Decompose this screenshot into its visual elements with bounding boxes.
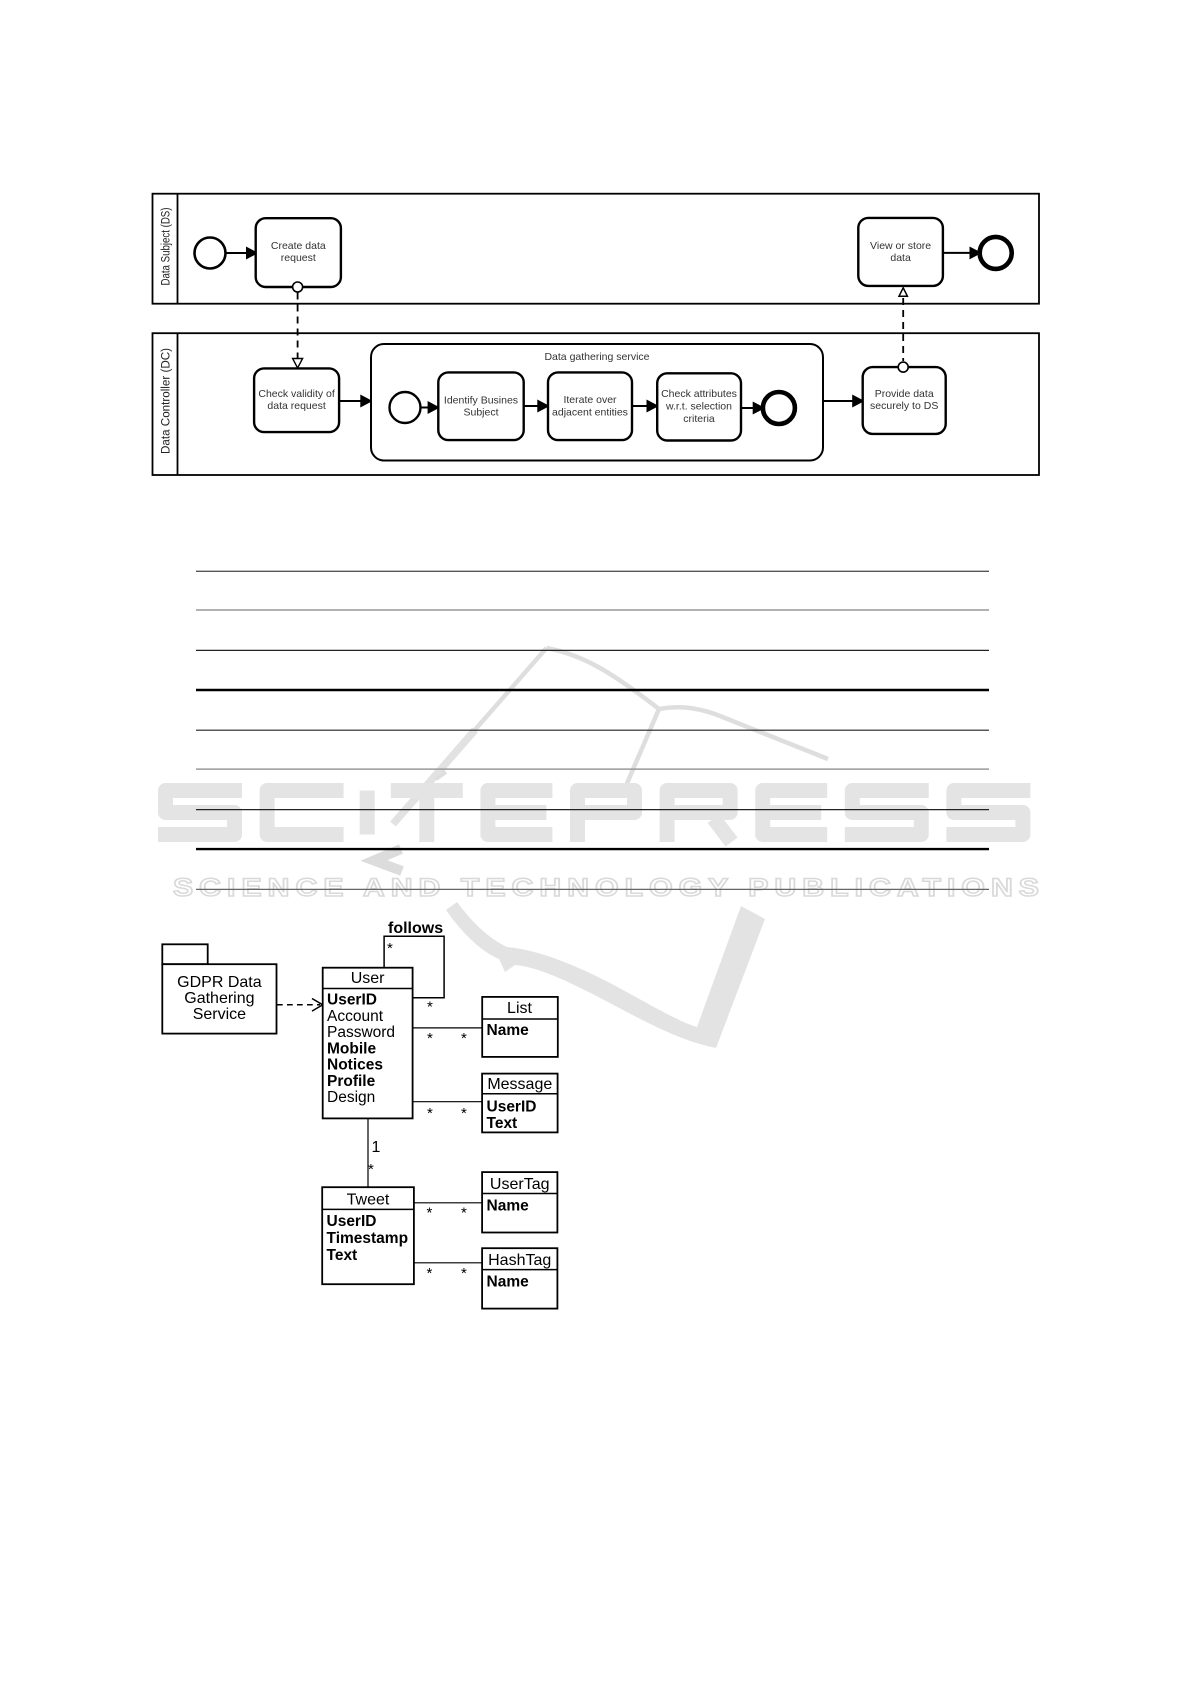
svg-text:Iterate over: Iterate over bbox=[563, 394, 617, 406]
svg-text:data: data bbox=[890, 252, 911, 264]
svg-text:*: * bbox=[461, 1105, 467, 1122]
svg-text:Tweet: Tweet bbox=[347, 1192, 390, 1209]
svg-text:GDPR Data: GDPR Data bbox=[177, 974, 262, 991]
svg-text:UserID: UserID bbox=[327, 1213, 377, 1230]
svg-text:HashTag: HashTag bbox=[488, 1252, 551, 1269]
svg-text:securely to DS: securely to DS bbox=[870, 400, 938, 412]
svg-text:Message: Message bbox=[487, 1076, 552, 1093]
svg-text:Design: Design bbox=[327, 1089, 375, 1106]
svg-text:data request: data request bbox=[267, 400, 325, 412]
svg-text:w.r.t. selection: w.r.t. selection bbox=[665, 401, 732, 413]
svg-text:Account: Account bbox=[327, 1008, 384, 1025]
svg-text:follows: follows bbox=[388, 920, 443, 937]
svg-text:*: * bbox=[427, 1030, 433, 1047]
svg-text:Check attributes: Check attributes bbox=[661, 388, 737, 400]
svg-text:Gathering: Gathering bbox=[184, 990, 254, 1007]
svg-text:Timestamp: Timestamp bbox=[327, 1230, 409, 1247]
svg-text:*: * bbox=[427, 1105, 433, 1122]
svg-text:SCIENCE AND TECHNOLOGY PUBLICA: SCIENCE AND TECHNOLOGY PUBLICATIONS bbox=[173, 874, 1045, 902]
svg-text:*: * bbox=[427, 1265, 433, 1282]
svg-text:Identify Busines: Identify Busines bbox=[444, 395, 518, 407]
svg-text:Data Controller (DC): Data Controller (DC) bbox=[161, 348, 173, 454]
svg-text:Mobile: Mobile bbox=[327, 1040, 376, 1057]
svg-text:request: request bbox=[281, 252, 316, 264]
svg-text:adjacent entities: adjacent entities bbox=[552, 407, 628, 419]
svg-text:UserTag: UserTag bbox=[490, 1176, 550, 1193]
svg-text:Name: Name bbox=[487, 1022, 530, 1039]
svg-text:Name: Name bbox=[487, 1274, 530, 1291]
svg-text:*: * bbox=[368, 1161, 374, 1178]
svg-text:Create data: Create data bbox=[271, 240, 326, 252]
svg-text:Service: Service bbox=[193, 1006, 246, 1023]
svg-text:Text: Text bbox=[487, 1115, 518, 1132]
svg-text:*: * bbox=[461, 1205, 467, 1222]
svg-text:Notices: Notices bbox=[327, 1057, 383, 1074]
svg-text:*: * bbox=[461, 1030, 467, 1047]
svg-text:*: * bbox=[427, 1205, 433, 1222]
svg-text:Text: Text bbox=[327, 1247, 358, 1264]
svg-text:Check validity of: Check validity of bbox=[258, 388, 335, 400]
svg-text:User: User bbox=[351, 970, 385, 987]
svg-text:Subject: Subject bbox=[463, 407, 498, 419]
svg-text:1: 1 bbox=[372, 1139, 381, 1156]
svg-text:Name: Name bbox=[487, 1198, 530, 1215]
svg-text:*: * bbox=[461, 1265, 467, 1282]
svg-text:Password: Password bbox=[327, 1024, 395, 1041]
svg-text:UserID: UserID bbox=[487, 1099, 537, 1116]
svg-text:View or store: View or store bbox=[870, 240, 931, 252]
svg-text:Provide data: Provide data bbox=[875, 388, 934, 400]
svg-text:UserID: UserID bbox=[327, 992, 377, 1009]
svg-text:*: * bbox=[387, 940, 393, 957]
svg-text:Data Subject (DS): Data Subject (DS) bbox=[161, 207, 173, 285]
svg-text:Data gathering service: Data gathering service bbox=[544, 351, 649, 363]
svg-text:List: List bbox=[507, 1000, 532, 1017]
svg-text:Profile: Profile bbox=[327, 1073, 376, 1090]
svg-text:*: * bbox=[427, 999, 433, 1016]
svg-text:criteria: criteria bbox=[683, 413, 715, 425]
